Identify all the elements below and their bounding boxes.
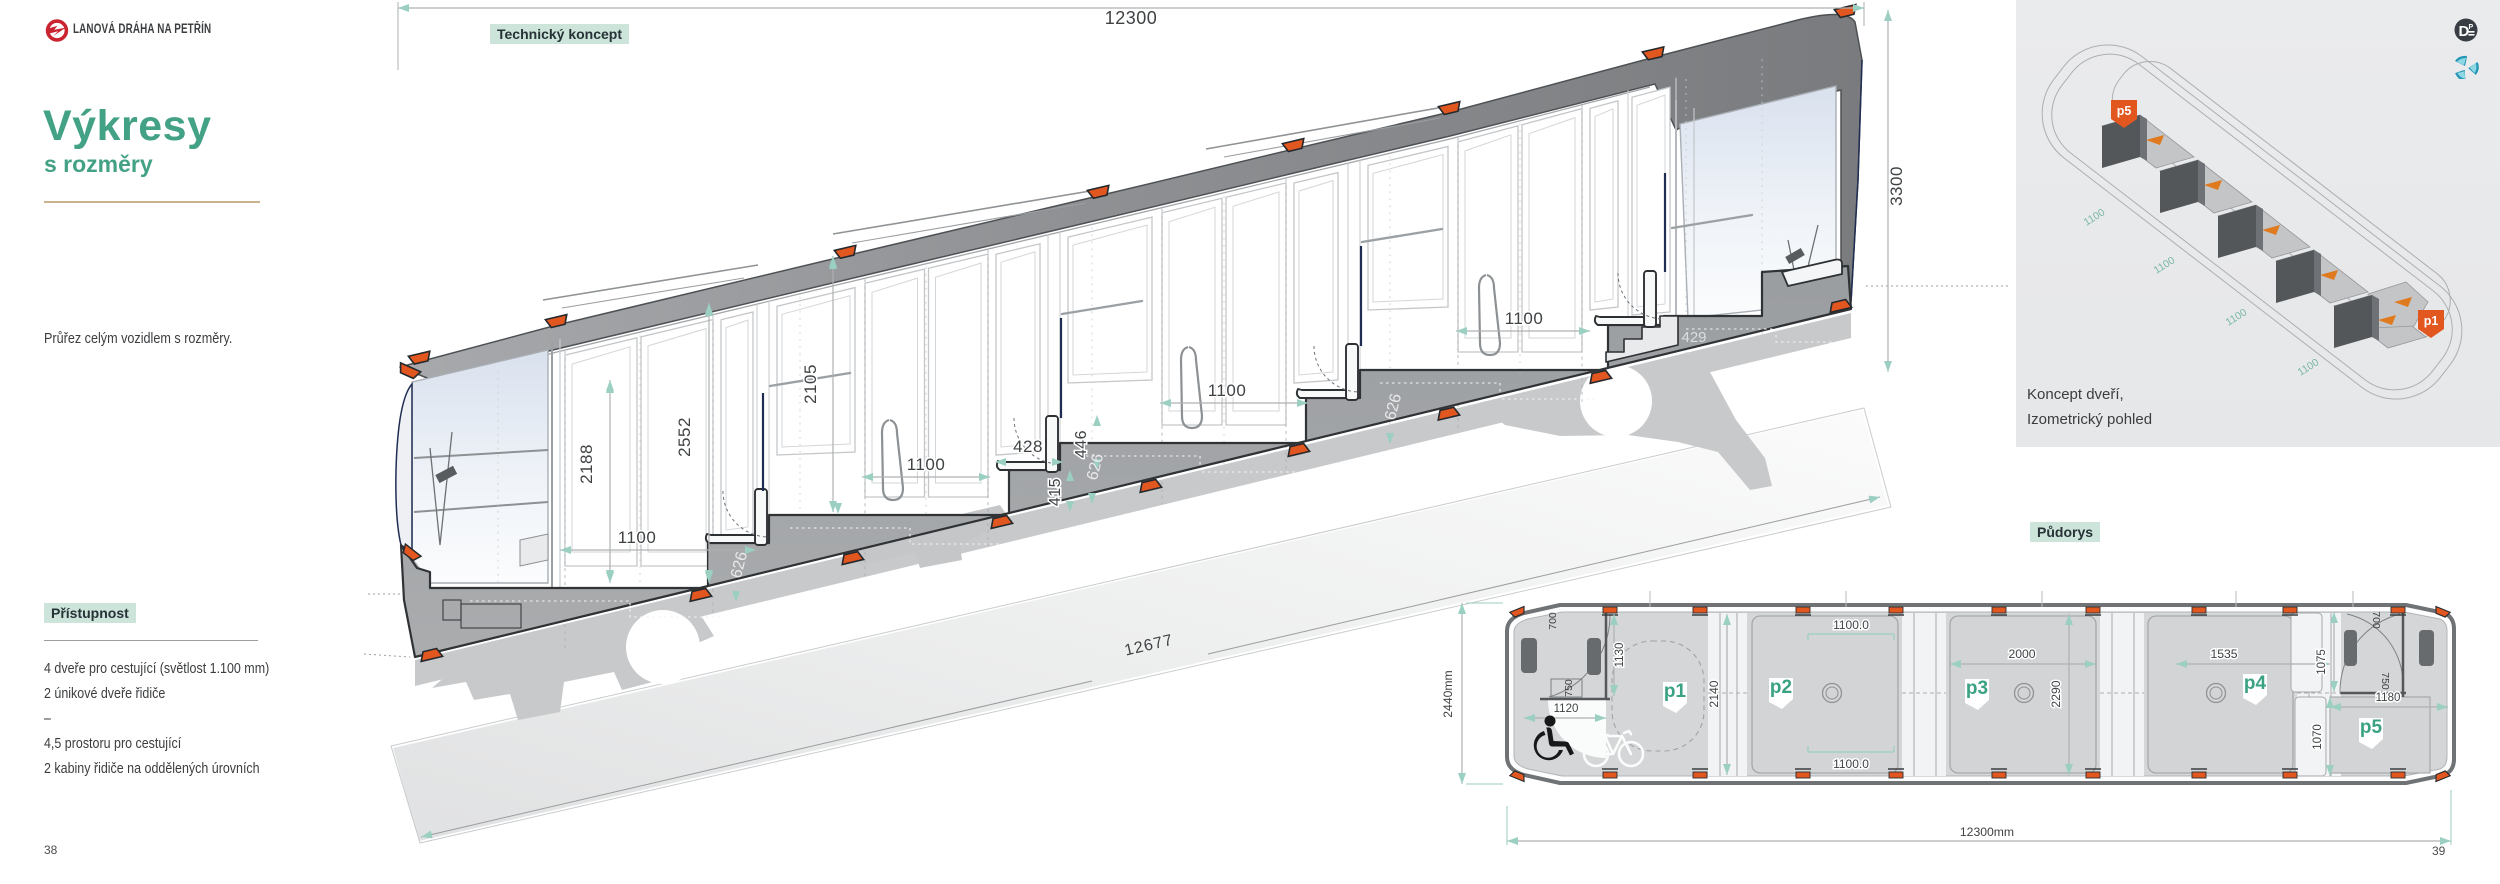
svg-text:2290: 2290 <box>2049 680 2063 707</box>
svg-text:p2: p2 <box>1770 677 1792 698</box>
svg-text:1100.0: 1100.0 <box>1833 757 1869 771</box>
svg-text:750: 750 <box>2379 672 2391 690</box>
svg-text:750: 750 <box>1563 679 1575 697</box>
svg-text:700: 700 <box>1547 612 1559 630</box>
svg-text:2140: 2140 <box>1707 680 1721 707</box>
svg-text:1100.0: 1100.0 <box>1833 618 1869 632</box>
svg-text:p4: p4 <box>2244 673 2267 694</box>
svg-text:2000: 2000 <box>2008 647 2035 661</box>
svg-text:1120: 1120 <box>1554 703 1579 715</box>
svg-text:2440mm: 2440mm <box>1441 670 1455 717</box>
svg-text:1075: 1075 <box>2316 649 2328 675</box>
svg-text:700: 700 <box>2370 611 2382 629</box>
svg-text:p3: p3 <box>1966 678 1988 699</box>
svg-text:p5: p5 <box>2360 717 2383 738</box>
svg-text:1070: 1070 <box>2312 724 2324 750</box>
svg-text:1130: 1130 <box>1614 643 1626 668</box>
svg-text:1535: 1535 <box>2210 647 2237 661</box>
svg-text:1180: 1180 <box>2376 692 2401 704</box>
svg-text:p1: p1 <box>1664 681 1687 702</box>
svg-text:12300mm: 12300mm <box>1960 825 2014 839</box>
